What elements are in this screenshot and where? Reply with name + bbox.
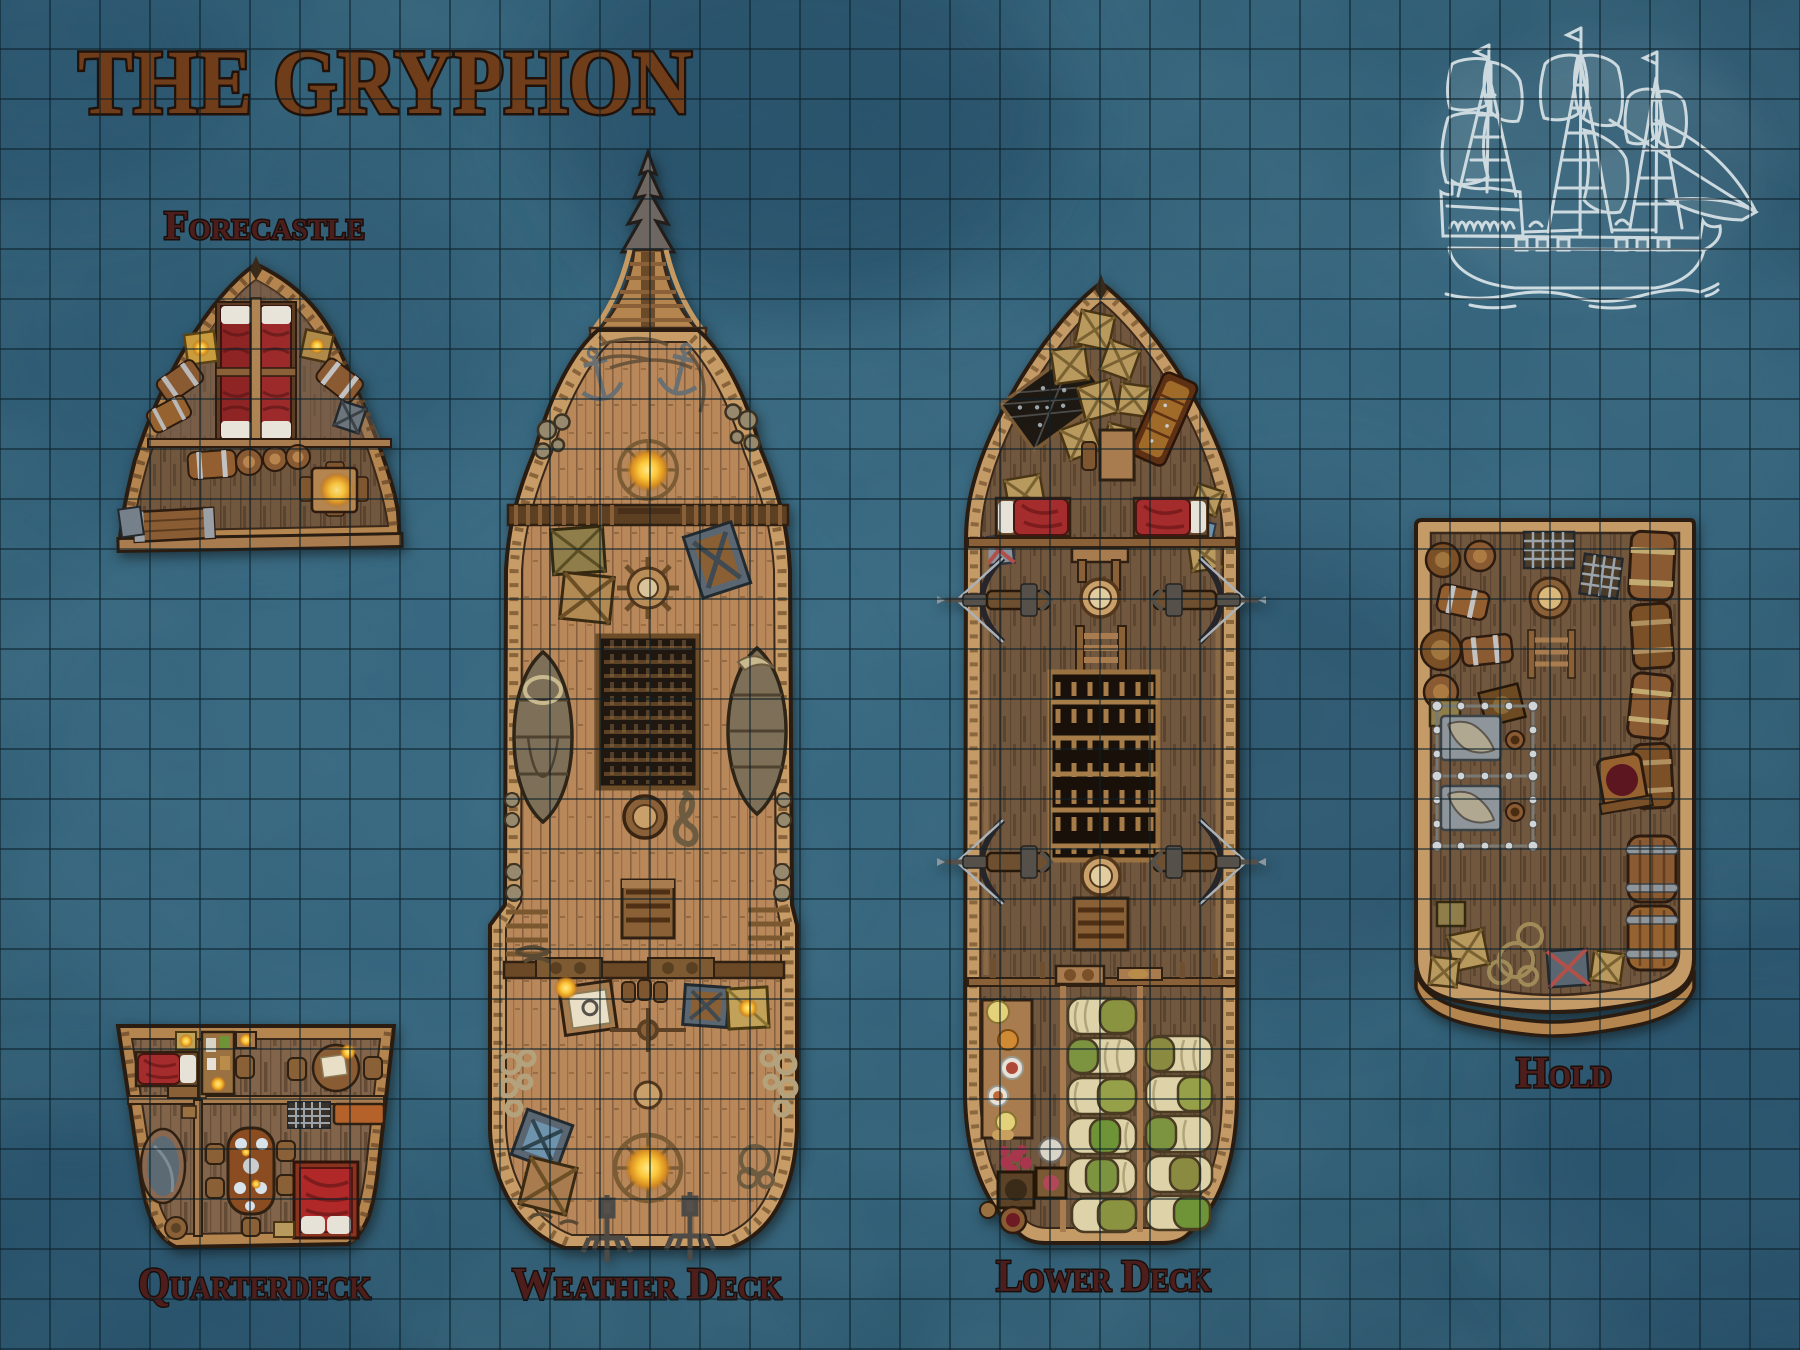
svg-text:Forecastle: Forecastle — [164, 202, 365, 248]
svg-text:Lower Deck: Lower Deck — [996, 1250, 1211, 1301]
svg-text:Weather Deck: Weather Deck — [512, 1258, 782, 1309]
svg-text:Quarterdeck: Quarterdeck — [138, 1258, 371, 1309]
svg-text:Hold: Hold — [1516, 1048, 1612, 1097]
